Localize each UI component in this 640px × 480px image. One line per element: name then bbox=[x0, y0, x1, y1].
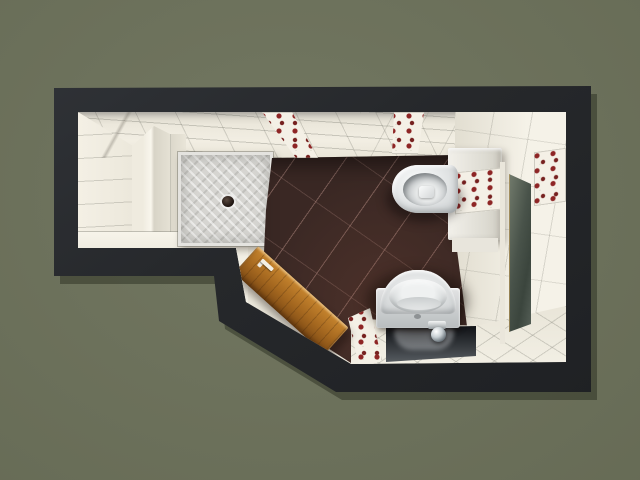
faucet[interactable] bbox=[431, 327, 446, 342]
washbasin-drain-icon bbox=[414, 314, 421, 319]
wall-column-corner bbox=[132, 126, 170, 248]
toilet-flush-button bbox=[419, 186, 434, 198]
washbasin-bowl-shade bbox=[397, 297, 441, 310]
shower-drain-icon bbox=[222, 196, 234, 207]
right-door-glass-panel bbox=[508, 172, 532, 334]
toilet-cistern-ledge bbox=[452, 238, 498, 252]
room-interior bbox=[0, 0, 640, 480]
bathroom-render-canvas bbox=[0, 0, 640, 480]
decor-strip-cistern bbox=[455, 168, 501, 215]
decor-strip-right-wall bbox=[534, 148, 566, 206]
